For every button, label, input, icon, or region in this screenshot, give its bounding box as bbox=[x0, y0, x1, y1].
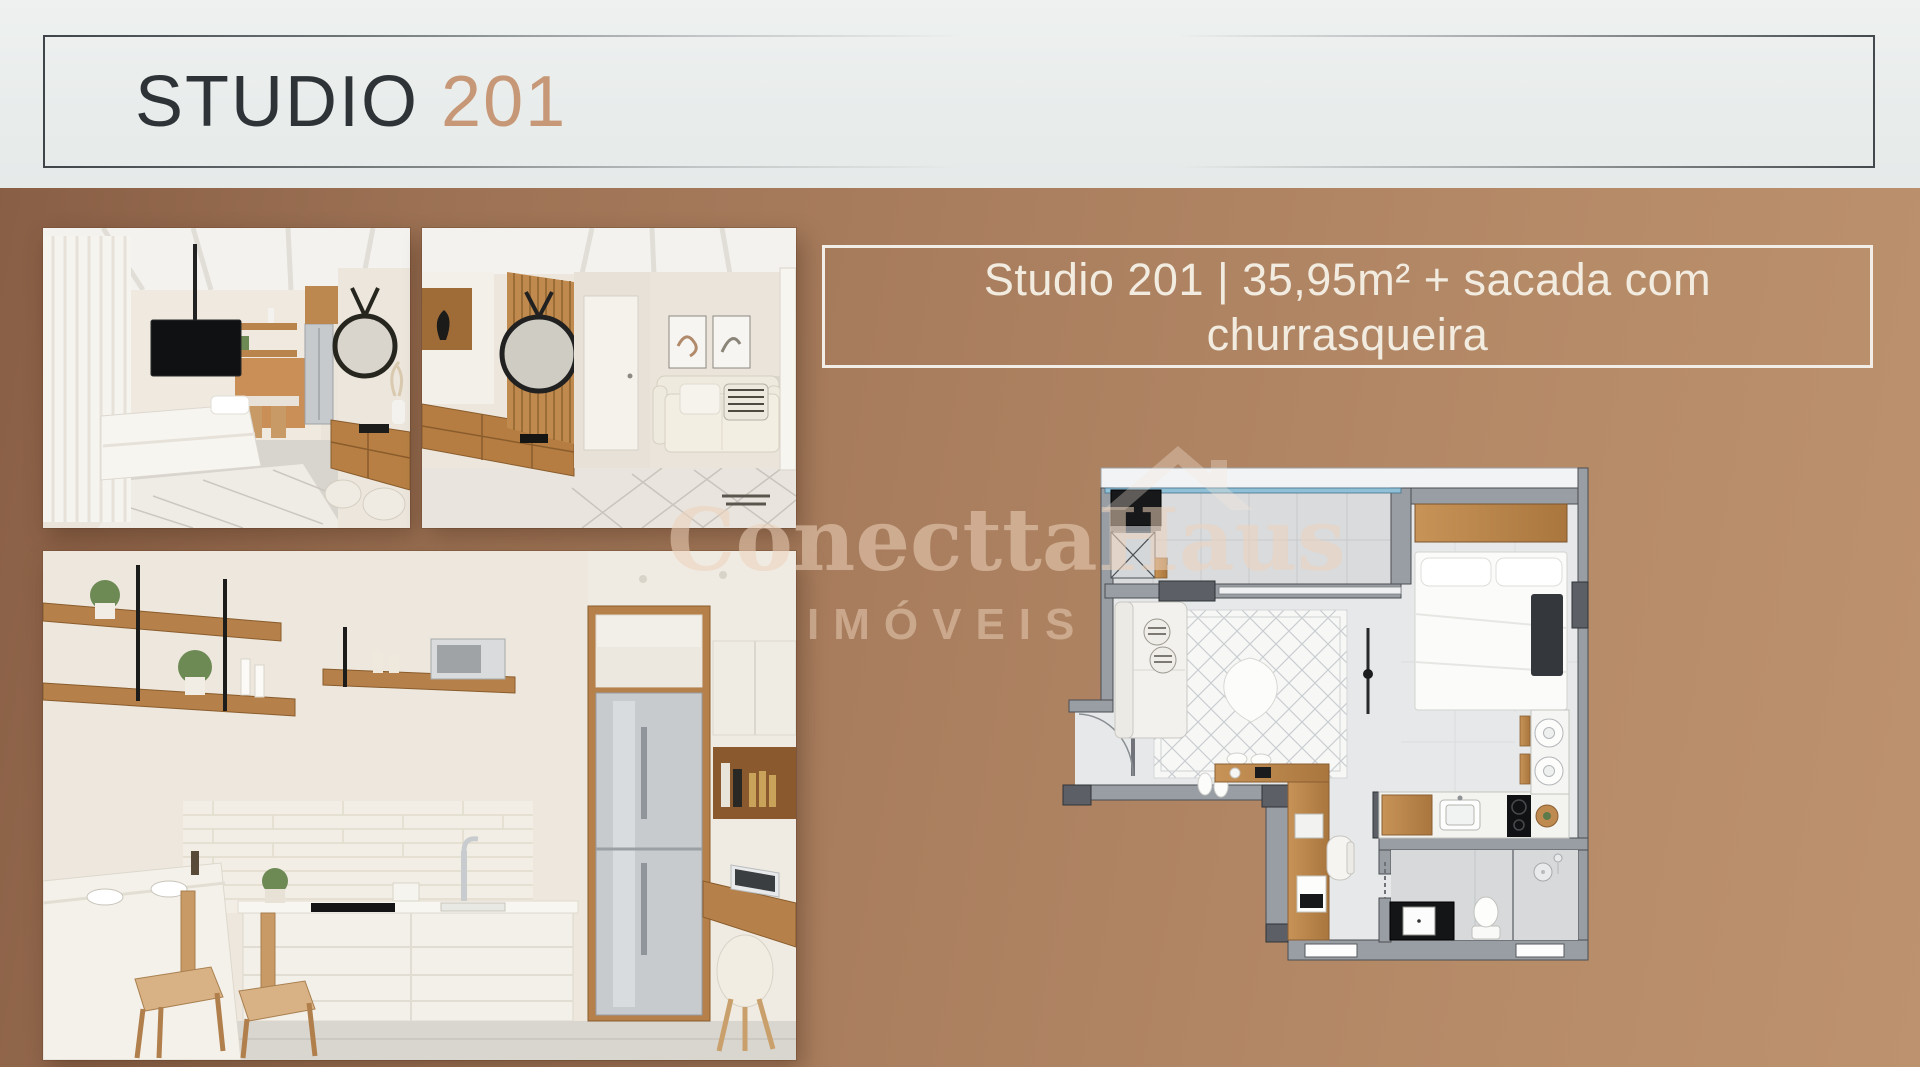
unit-info-box: Studio 201 | 35,95m² + sacada com churra… bbox=[822, 245, 1873, 368]
living-entry-illustration bbox=[422, 228, 796, 528]
unit-number: 201 bbox=[441, 62, 567, 142]
kitchen-office-illustration bbox=[43, 551, 796, 1060]
watermark-tagline: IMÓVEIS bbox=[807, 600, 1088, 650]
unit-headline: Studio 201 | 35,95m² + sacada com churra… bbox=[908, 252, 1788, 362]
photo-bedroom bbox=[43, 228, 410, 528]
presentation-slide: STUDIO 201 bbox=[0, 0, 1920, 1067]
photo-kitchen-office bbox=[43, 551, 796, 1060]
bedroom-illustration bbox=[43, 228, 410, 528]
header-band: STUDIO 201 bbox=[0, 0, 1920, 188]
floor-plan-drawing bbox=[1055, 462, 1595, 980]
header-title-box: STUDIO 201 bbox=[43, 35, 1875, 168]
photo-living-entry bbox=[422, 228, 796, 528]
page-title: STUDIO 201 bbox=[45, 61, 567, 143]
floor-plan bbox=[1055, 462, 1595, 980]
page-title-text: STUDIO bbox=[135, 62, 419, 142]
